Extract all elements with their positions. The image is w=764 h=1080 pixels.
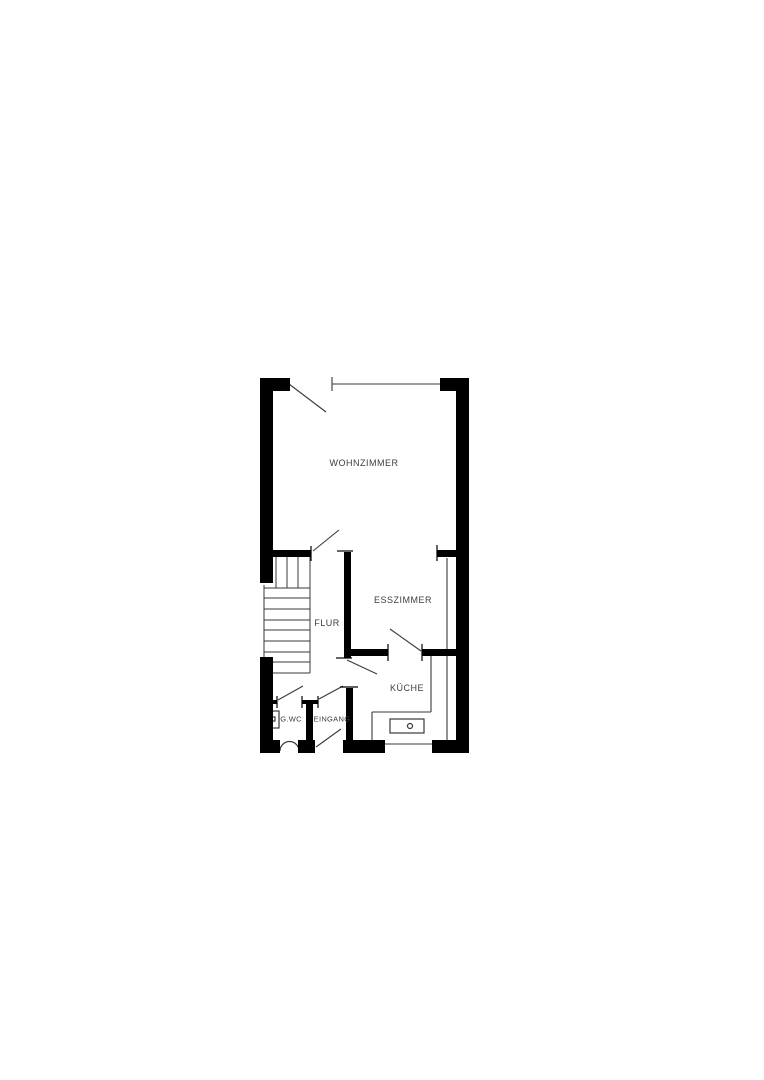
kitchen-counter bbox=[372, 656, 431, 740]
window-top bbox=[332, 377, 440, 391]
wall-stub-right bbox=[437, 550, 456, 557]
floorplan-canvas: WOHNZIMMER ESSZIMMER FLUR KÜCHE G.WC EIN… bbox=[0, 0, 764, 1080]
room-label-eingang: EINGANG bbox=[314, 715, 351, 724]
room-label-wohnzimmer: WOHNZIMMER bbox=[330, 458, 399, 468]
door-swing-eingang-flur bbox=[319, 686, 343, 699]
wall-kueche-top-left bbox=[347, 649, 388, 656]
wall-kueche-top-right bbox=[422, 649, 456, 656]
kitchen-sink-drain bbox=[408, 724, 413, 729]
door-swing-gwc bbox=[278, 686, 303, 700]
door-swing-esszimmer-kueche bbox=[390, 629, 421, 651]
room-label-gwc: G.WC bbox=[280, 715, 302, 724]
wall-gwc-top-left bbox=[272, 700, 277, 704]
wall-gwc-top-right bbox=[302, 700, 318, 704]
door-swing-terrace bbox=[289, 384, 326, 412]
room-label-flur: FLUR bbox=[314, 618, 340, 628]
room-label-esszimmer: ESSZIMMER bbox=[374, 595, 432, 605]
wall-gwc-eingang bbox=[306, 703, 313, 740]
door-swing-wohnzimmer-flur bbox=[313, 530, 339, 551]
wall-stairs-top bbox=[272, 550, 311, 557]
door-swing-front-door bbox=[316, 729, 341, 747]
wall-flur-esszimmer bbox=[344, 552, 351, 658]
room-label-kueche: KÜCHE bbox=[390, 683, 424, 693]
gwc-toilet-arc bbox=[280, 742, 299, 751]
door-swing-flur-kueche bbox=[347, 660, 377, 674]
floorplan-drawing bbox=[0, 0, 764, 1080]
exterior-walls bbox=[260, 378, 469, 753]
